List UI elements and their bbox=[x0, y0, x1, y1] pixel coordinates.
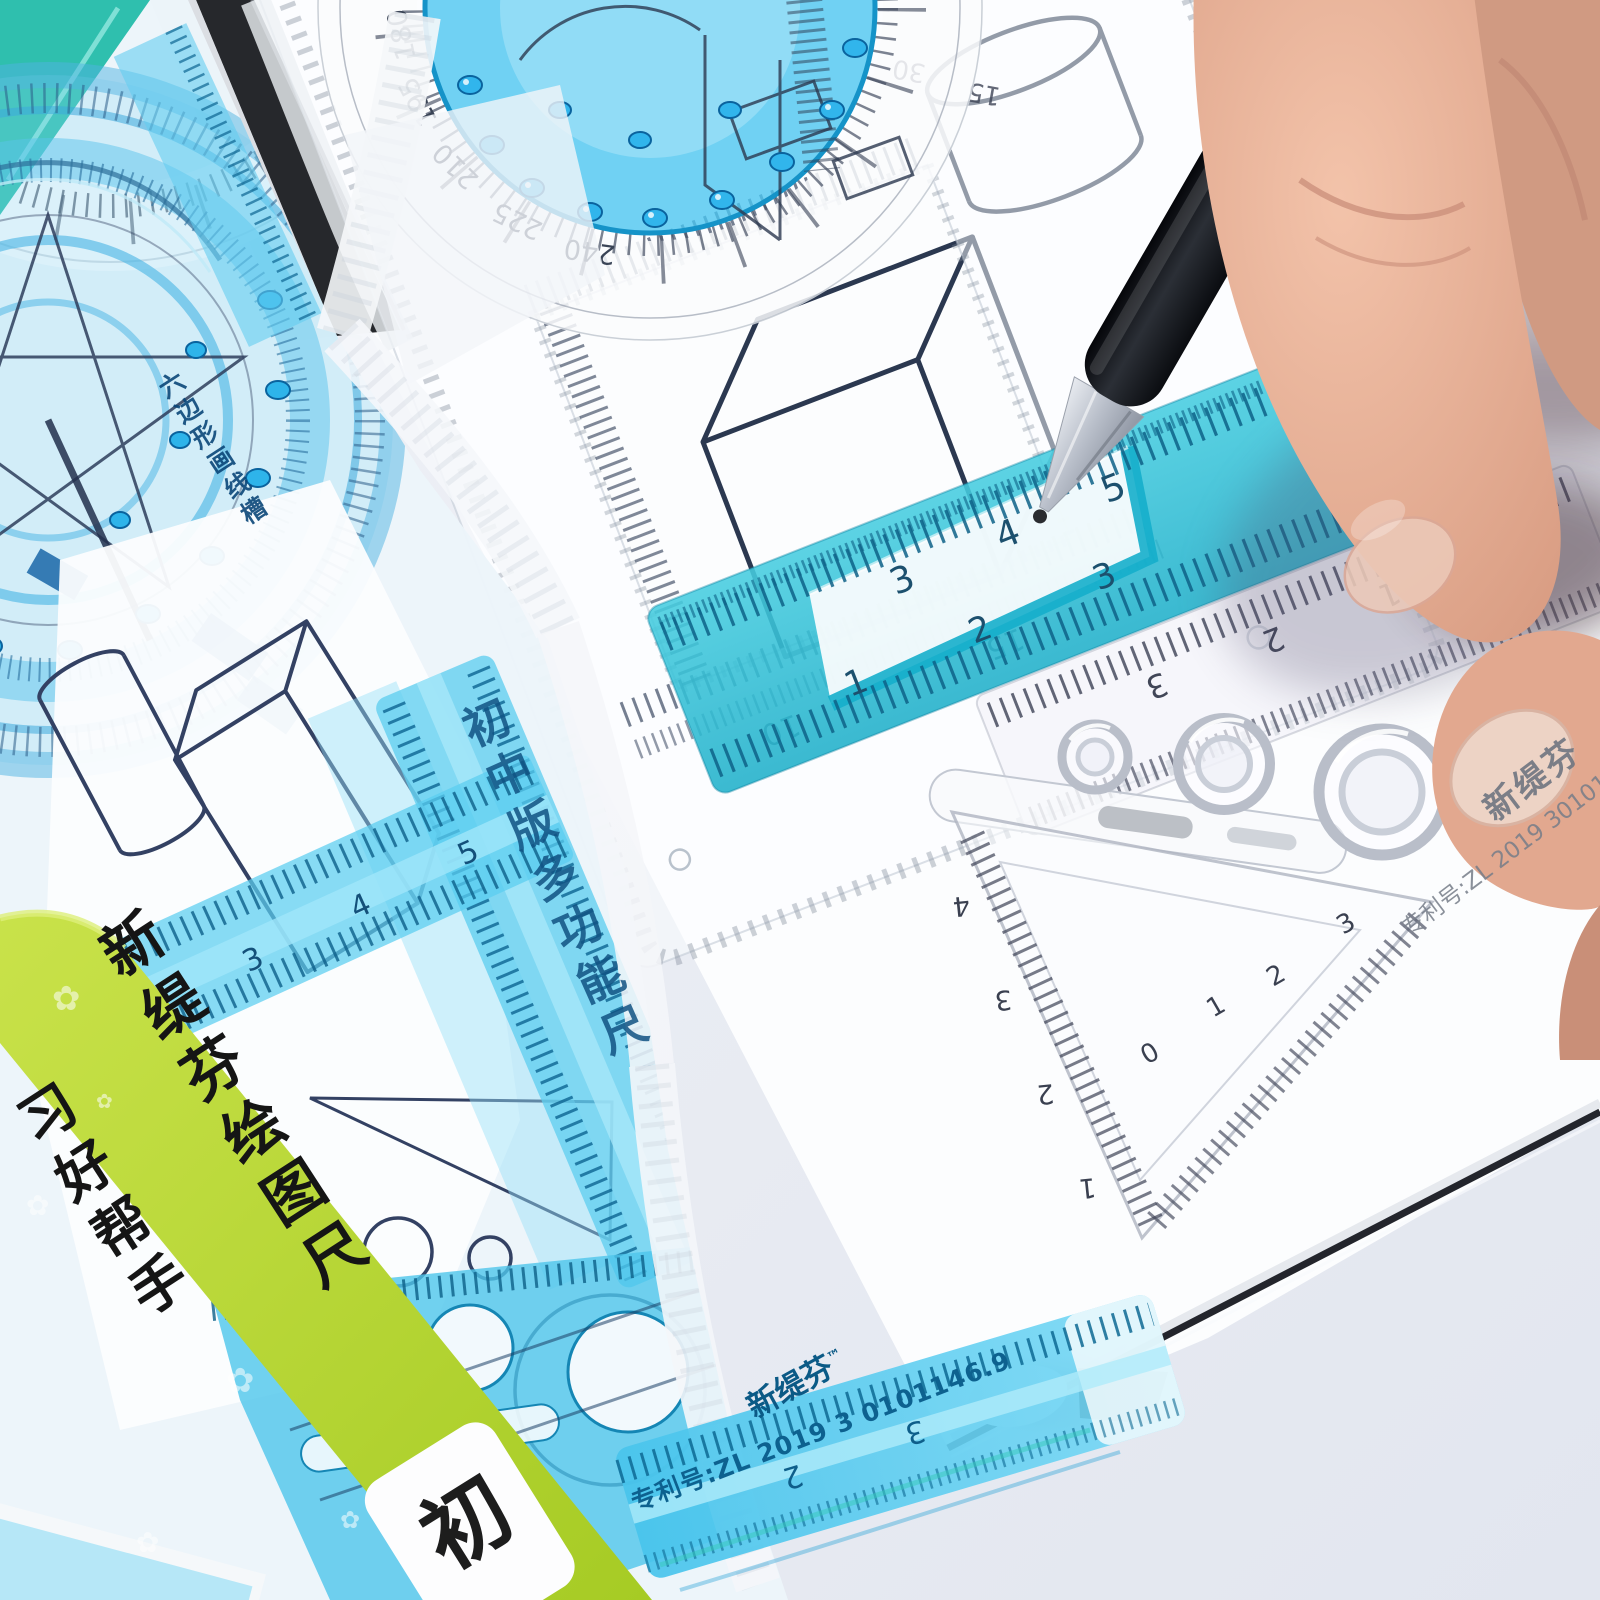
triangle-number: 4 bbox=[951, 889, 971, 922]
svg-text:✿: ✿ bbox=[96, 1089, 113, 1113]
svg-text:✿: ✿ bbox=[26, 1189, 49, 1222]
triangle-number: 3 bbox=[993, 983, 1013, 1016]
svg-text:✿: ✿ bbox=[226, 1361, 255, 1401]
svg-text:✿: ✿ bbox=[136, 1526, 159, 1559]
photo-canvas: 10 15 30 15 240 225 210 195 180 bbox=[0, 0, 1600, 1600]
triangle-number: 1 bbox=[1077, 1171, 1097, 1204]
product-photo-ruler-set: 10 15 30 15 240 225 210 195 180 bbox=[0, 0, 1600, 1600]
triangle-number: 2 bbox=[1035, 1077, 1055, 1110]
svg-text:✿: ✿ bbox=[340, 1506, 360, 1534]
svg-text:✿: ✿ bbox=[52, 979, 81, 1019]
